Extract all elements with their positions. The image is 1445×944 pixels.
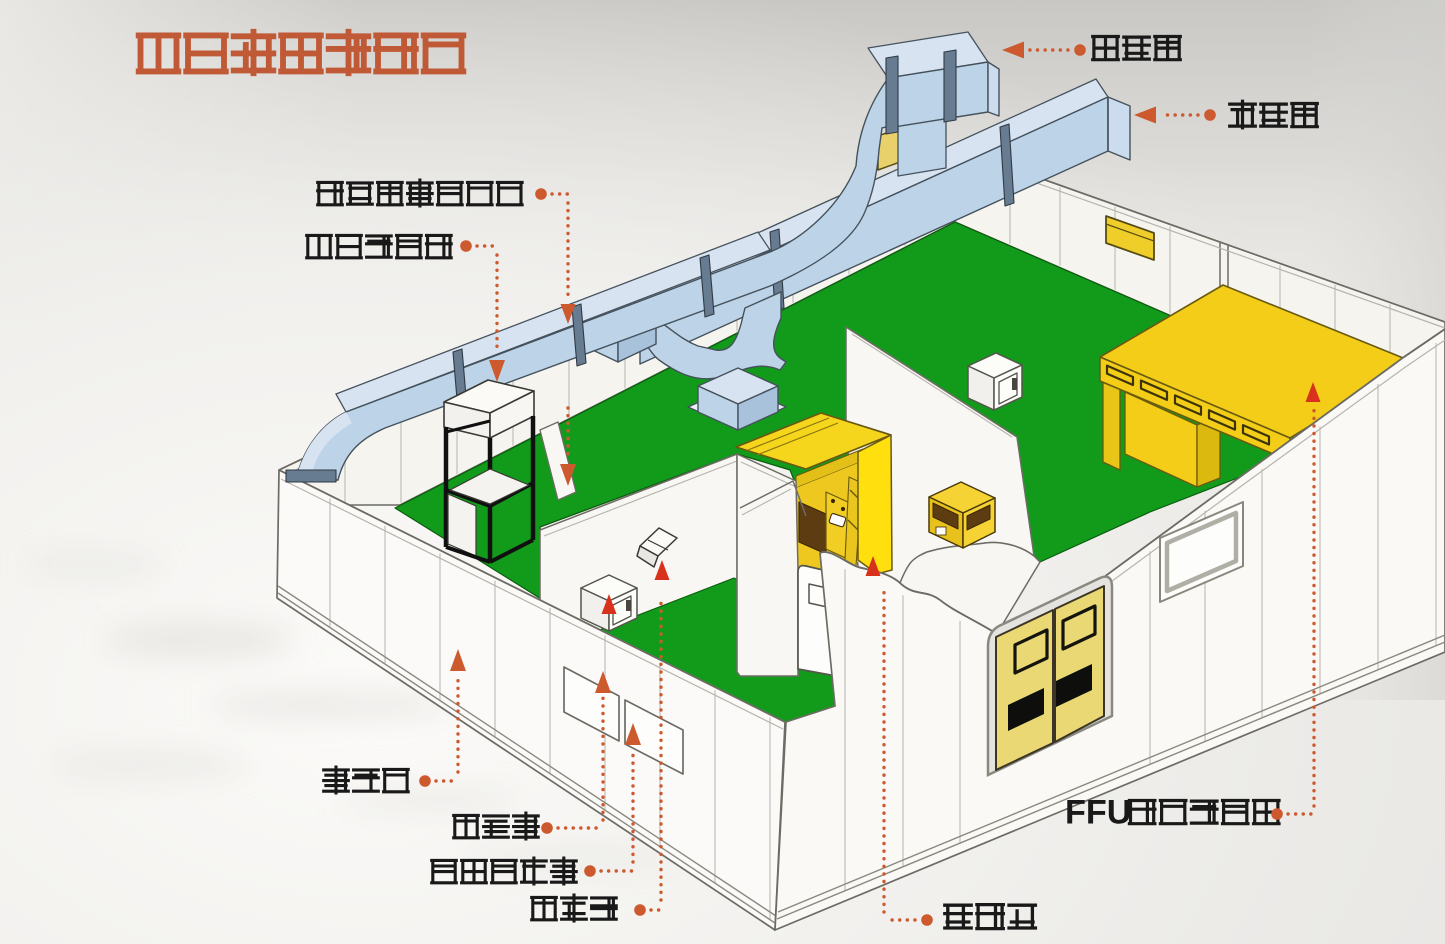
svg-text:F: F [1086,794,1107,832]
svg-text:U: U [1107,794,1132,832]
svg-text:F: F [1065,794,1086,832]
